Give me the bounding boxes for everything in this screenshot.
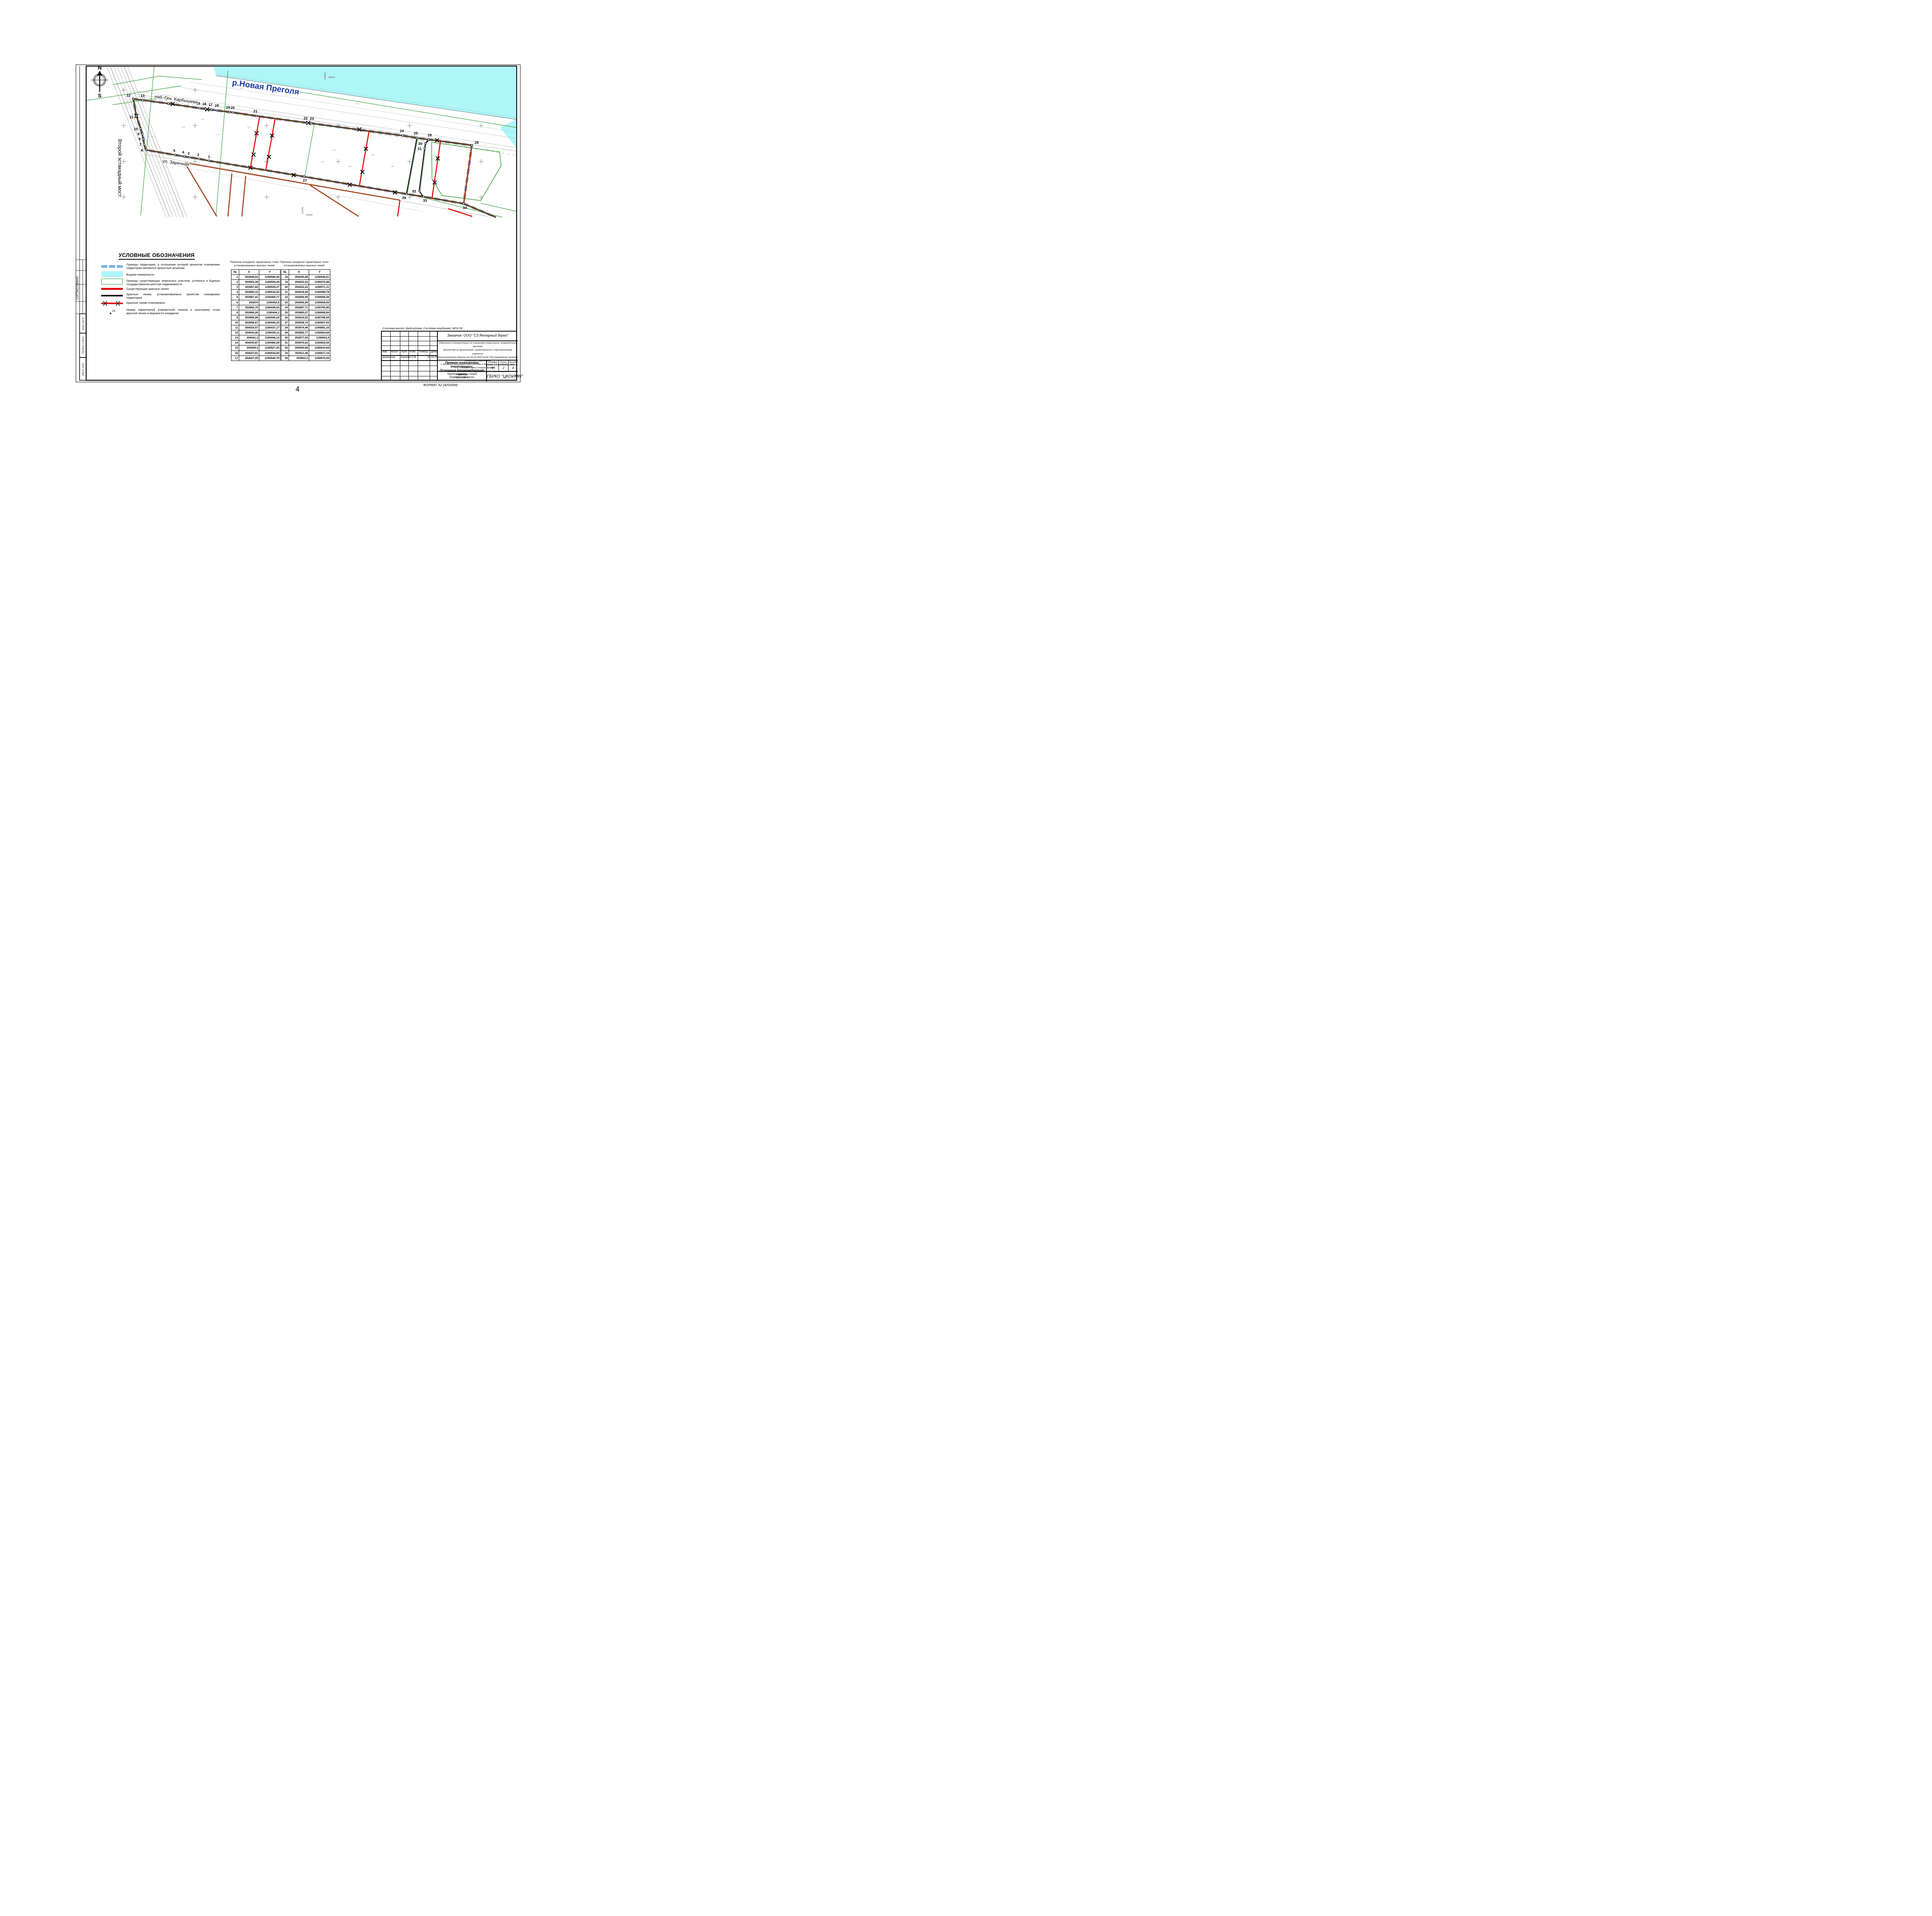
coord-cell: 12 [231, 330, 239, 335]
legend-swatch-red-planned [101, 295, 123, 296]
drawing-name: Чертеж красных линий М 1:1000 [438, 373, 486, 379]
coord-cell: 353902,2 [289, 356, 309, 361]
coord-cell: 354006,99 [289, 295, 309, 300]
point-marker [216, 110, 218, 112]
col-ndoc: N°док [409, 351, 415, 353]
point-marker [142, 99, 144, 101]
coord-cell: 353974,48 [289, 325, 309, 330]
coord-cell: 353914,52 [289, 315, 309, 320]
coord-cell: 353982,77 [289, 330, 309, 335]
coord-cell: 354041,3 [239, 335, 259, 340]
sheets-label: Листов [509, 361, 518, 364]
table-row: 22354006,991190668,26 [281, 295, 330, 300]
compass-n: N [98, 65, 102, 71]
compass-s: S [98, 92, 101, 99]
coord-cell: 24 [281, 305, 289, 310]
coord-cell: 353970 [239, 300, 259, 305]
stamp-podpis: Подпись и дата [82, 336, 85, 354]
legend-label: Существующие красные линии [126, 287, 220, 291]
legend-swatch-water [101, 271, 123, 277]
coord-cell: 353920,94 [289, 345, 309, 351]
legend-label: Номер характерной (поворотной, начала и … [126, 308, 220, 315]
coord-cell: 354018,09 [289, 290, 309, 295]
table-row: 3353957,841190529,27 [231, 285, 281, 290]
coord-cell: 25 [281, 310, 289, 315]
coord-cell: 1190823,54 [309, 340, 330, 345]
grid-y-bottom: 1190600 [302, 207, 304, 214]
point-marker [199, 107, 201, 109]
spot-elevation: 1.44 [201, 118, 204, 120]
point-number-label: 7 [139, 143, 141, 147]
coord-cell: 354024,57 [239, 325, 259, 330]
grid-y-top: 1190850 [324, 72, 327, 80]
point-number-label: 31 [417, 147, 422, 151]
table-row: 24353987,711190790,86 [281, 305, 330, 310]
stage-value: ПП [487, 366, 498, 370]
point-marker [143, 138, 145, 140]
point-number-label: 27 [303, 179, 307, 183]
coord-cell: 1190540,79 [259, 356, 281, 361]
table-row: 16354027,811190534,84 [231, 351, 281, 356]
coord-cell: 353938,74 [289, 320, 309, 325]
point-marker [463, 203, 465, 205]
coord-cell: 17 [231, 356, 239, 361]
coord-cell: 13 [231, 335, 239, 340]
spot-elevation: 1.63 [371, 154, 374, 156]
legend-label: Границы существующих земельных участков,… [126, 279, 220, 286]
spot-elevation: 1.52 [270, 138, 274, 140]
table-row: 8353988,261190444,1 [231, 310, 281, 315]
point-marker [428, 139, 430, 141]
table-row: 28353974,481190881,16 [281, 325, 330, 330]
coord-cell: 354022,24 [289, 280, 309, 285]
legend-swatch-red-existing [101, 288, 123, 290]
point-number-label: 28 [474, 141, 479, 145]
coord-cell: 354025,89 [289, 275, 309, 280]
bridge-label: Второй эстакадный мост [117, 139, 123, 197]
left-stamp-column [76, 66, 86, 380]
col-header: Y [309, 270, 330, 275]
coord-cell: 1190571,11 [309, 285, 330, 290]
point-marker [310, 123, 312, 124]
table-row: 32353920,941190815,69 [281, 345, 330, 351]
point-marker [145, 149, 147, 151]
point-number-label: 16 [202, 102, 207, 106]
spot-elevation: 1.25 [247, 126, 251, 128]
coord-cell: 353988,26 [239, 310, 259, 315]
coord-cell: 1190534,84 [259, 351, 281, 356]
col-list: Лист [401, 351, 407, 353]
point-number-label: 5 [173, 149, 175, 153]
point-number-label: 9 [138, 132, 139, 136]
coord-cell: 354022,22 [289, 285, 309, 290]
point-number-label: 17 [209, 103, 213, 107]
coord-cell: 353982,75 [239, 305, 259, 310]
point-marker [174, 154, 176, 156]
coord-cell: 30 [281, 335, 289, 340]
coord-cell: 1190798,59 [309, 315, 330, 320]
coord-cell: 354043,06 [239, 330, 259, 335]
coord-cell: 33 [281, 351, 289, 356]
point-number-label: 1 [208, 155, 210, 159]
point-number-label: 32 [412, 189, 416, 194]
point-number-label: 33 [423, 199, 427, 203]
point-number-label: 12 [126, 94, 131, 98]
legend-swatch-boundary [101, 265, 123, 268]
coord-cell: 1190598,78 [309, 290, 330, 295]
drawing-sheet: СОГЛАСОВАНО Взам. инв.N° Подпись и дата … [0, 0, 597, 422]
signer-name: Корягин С.В. [401, 356, 417, 359]
point-number-label: 25 [414, 131, 418, 136]
legend-label: Водная поверхность [126, 273, 220, 276]
grid-x-top: 354000 [328, 77, 335, 79]
territory-boundary [133, 99, 496, 217]
col-kol: Кол.уч. [391, 351, 399, 353]
svg-text:23: 23 [112, 309, 115, 313]
table-row: 27353938,741190657,63 [281, 320, 330, 325]
spot-elevation: 1.47 [332, 149, 336, 151]
point-labels: 1234567891011121314151617181920212223242… [126, 94, 478, 210]
table-row: 1353949,041190588,38 [231, 275, 281, 280]
point-number-label: 8 [139, 137, 141, 141]
table-row: 5353967,411190469,77 [231, 295, 281, 300]
stamp-approved: СОГЛАСОВАНО [76, 276, 79, 299]
coord-cell: 1190815,69 [309, 345, 330, 351]
stamp-vzam: Взам. инв.N° [82, 316, 85, 330]
legend-label: Красные линии отменяемые [126, 301, 220, 305]
point-number-label: 23 [310, 117, 314, 121]
spot-elevation: 1.36 [182, 126, 185, 128]
coord-cell: 21 [281, 290, 289, 295]
col-sign: Подпись [419, 351, 428, 353]
coord-table-1: №XY1353949,041190588,382353953,381190559… [231, 269, 281, 361]
coord-cell: 1190440,24 [259, 315, 281, 320]
title-block: Изм. Кол.уч. Лист N°док Подпись Дата Дир… [381, 331, 517, 381]
spot-elevation: 1.22 [216, 134, 220, 136]
table-row: 34353902,21190870,05 [281, 356, 330, 361]
point-marker [168, 103, 170, 105]
coord-cell: 19 [281, 280, 289, 285]
coord-cell: 18 [281, 275, 289, 280]
coord-cell: 32 [281, 345, 289, 351]
point-number-label: 18 [215, 104, 219, 108]
coord-cell: 353967,41 [239, 295, 259, 300]
coord-cell: 11 [231, 325, 239, 330]
signature-date: 29.03.25 [427, 356, 437, 359]
water-surface [213, 66, 516, 148]
coord-cell: 8 [231, 310, 239, 315]
point-number-label: 4 [182, 150, 184, 155]
coord-cell: 1190440,23 [259, 320, 281, 325]
coord-cell: 1190527,25 [259, 345, 281, 351]
coord-cell: 1190529,27 [259, 285, 281, 290]
coord-cell: 1190668,94 [309, 300, 330, 305]
point-number-label: 20 [231, 106, 235, 110]
sheets-value: 8 [509, 366, 518, 370]
point-marker [406, 193, 408, 195]
point-number-label: 2 [197, 153, 199, 157]
coord-cell: 354027,81 [239, 351, 259, 356]
coord-cell: 1190452,5 [259, 300, 281, 305]
coord-cell: 1190518,22 [259, 290, 281, 295]
spot-elevation: 1.90 [390, 165, 394, 167]
coord-cell: 1190437,17 [259, 325, 281, 330]
table-row: 12354043,061190435,11 [231, 330, 281, 335]
point-marker [306, 122, 308, 124]
coord-cell: 6 [231, 300, 239, 305]
coord-table-2: №XY18354025,891190546,6119354022,2411905… [281, 269, 330, 361]
coord-cell: 7 [231, 305, 239, 310]
point-marker [303, 176, 305, 178]
table-row: 29353982,771190824,68 [281, 330, 330, 335]
coord-cell: 27 [281, 320, 289, 325]
coord-cell: 1190657,63 [309, 320, 330, 325]
customer: Заказчик: ООО "СЗ Янтарный берег" [438, 334, 518, 337]
table-row: 63539701190452,5 [231, 300, 281, 305]
col-header: № [231, 270, 239, 275]
table-row: 20354022,221190571,11 [281, 285, 330, 290]
point-marker [198, 158, 200, 160]
coord-cell: 1190870,05 [309, 356, 330, 361]
coord-cell: 23 [281, 300, 289, 305]
coord-cell: 14 [231, 340, 239, 345]
table-row: 23354006,891190668,94 [281, 300, 330, 305]
coord-cell: 2 [231, 280, 239, 285]
spot-elevations: 1.251.521.471.361.221.851.631.901.441.97… [182, 87, 394, 167]
point-marker [189, 157, 190, 158]
col-izm: Изм. [383, 351, 388, 353]
coord-cell: 354006,89 [289, 300, 309, 305]
sheet-label: Лист [499, 361, 508, 364]
point-marker [140, 128, 142, 130]
table-row: 30353977,541190823,9 [281, 335, 330, 340]
table-row: 15354028,41190527,25 [231, 345, 281, 351]
coord-cell: 1190469,77 [259, 295, 281, 300]
coord-cell: 1190435,11 [259, 330, 281, 335]
legend-title: УСЛОВНЫЕ ОБОЗНАЧЕНИЯ [119, 252, 195, 260]
coord-cell: 34 [281, 356, 289, 361]
point-marker [255, 115, 257, 117]
coord-cell: 1190570,98 [309, 280, 330, 285]
coord-cell: 353996,67 [239, 320, 259, 325]
coord-cell: 4 [231, 290, 239, 295]
table-row: 26353914,521190798,59 [281, 315, 330, 320]
coord-cell: 20 [281, 285, 289, 290]
point-number-label: 26 [402, 196, 406, 200]
coord-cell: 28 [281, 325, 289, 330]
point-number-label: 6 [141, 148, 143, 153]
coord-cell: 354035,87 [239, 340, 259, 345]
point-marker [425, 143, 427, 145]
coord-cell: 354028,4 [239, 345, 259, 351]
coord-cell: 15 [231, 345, 239, 351]
sheet-value: 2 [499, 366, 508, 370]
table-row: 4353960,121190518,22 [231, 290, 281, 295]
coord-cell: 22 [281, 295, 289, 300]
coord-cell: 353985,07 [289, 310, 309, 315]
legend-swatch-red-cancelled [101, 301, 123, 306]
coord-cell: 1190881,16 [309, 325, 330, 330]
table1-title: Перечень координат характерных точек уст… [226, 261, 282, 267]
point-marker [205, 108, 207, 110]
coord-cell: 354027,05 [239, 356, 259, 361]
existing-red-lines [185, 163, 472, 216]
coord-cell: 1190546,61 [309, 275, 330, 280]
coord-cell: 1190588,38 [259, 275, 281, 280]
coord-cell: 9 [231, 315, 239, 320]
coord-cell: 16 [231, 351, 239, 356]
coord-cell: 1190823,9 [309, 335, 330, 340]
col-date: Дата [431, 351, 437, 353]
coord-cell: 1190446,12 [259, 335, 281, 340]
col-header: Y [259, 270, 281, 275]
format-note: ФОРМАТ А2 (420х594) [406, 383, 475, 387]
coord-cell: 3 [231, 285, 239, 290]
point-number-label: 3 [187, 151, 189, 156]
point-marker [184, 156, 185, 158]
coord-cell: 1190808,84 [309, 310, 330, 315]
point-marker [402, 135, 404, 137]
point-number-label: 24 [400, 129, 404, 133]
point-marker [424, 148, 426, 150]
point-number-label: 21 [253, 109, 258, 114]
coord-cell: 353949,04 [239, 275, 259, 280]
point-marker [133, 98, 134, 100]
point-marker [471, 145, 473, 146]
table-row: 18354025,891190546,61 [281, 275, 330, 280]
point-number-label: 19 [226, 105, 230, 110]
point-marker [418, 190, 420, 192]
coord-cell: 1190668,26 [309, 295, 330, 300]
organization: ГБУКО "ЦКОИМН" [487, 374, 518, 379]
table-row: 9353996,661190440,24 [231, 315, 281, 320]
point-number-label: 34 [463, 206, 467, 210]
col-header: X [289, 270, 309, 275]
coord-cell: 353911,38 [289, 351, 309, 356]
point-marker [136, 115, 138, 117]
table-row: 17354027,051190540,79 [231, 356, 281, 361]
coord-cell: 31 [281, 340, 289, 345]
col-header: № [281, 270, 289, 275]
coord-cell: 29 [281, 330, 289, 335]
point-marker [229, 111, 231, 113]
grid-x-bottom: 353900 [306, 214, 313, 216]
table-row: 7353982,751190446,63 [231, 305, 281, 310]
coord-cell: 353953,38 [239, 280, 259, 285]
table-row: 11354024,571190437,17 [231, 325, 281, 330]
point-marker [423, 196, 425, 198]
coord-cell: 1190824,68 [309, 330, 330, 335]
point-marker [416, 137, 418, 139]
coord-cell: 1190790,86 [309, 305, 330, 310]
table-row: 33353911,381190817,15 [281, 351, 330, 356]
page-number: 4 [296, 385, 299, 393]
table-row: 2353953,381190559,49 [231, 280, 281, 285]
spot-elevation: 1.85 [348, 165, 351, 167]
legend-swatch-parcels [101, 279, 123, 284]
legend-label: Красные линии, устанавливаемые проектом … [126, 293, 220, 299]
table-row: 10353996,671190440,23 [231, 320, 281, 325]
legend-label: Границы территории, в отношении которой … [126, 263, 220, 270]
table-row: 13354041,31190446,12 [231, 335, 281, 340]
coord-cell: 10 [231, 320, 239, 325]
coord-cell: 1190817,15 [309, 351, 330, 356]
coord-cell: 5 [231, 295, 239, 300]
street-label: ул. Заречная [162, 159, 189, 167]
table-row: 31353975,021190823,54 [281, 340, 330, 345]
stage-label: Стадия [487, 361, 498, 364]
north-arrow: N S [91, 65, 108, 99]
table2-title: Перечень координат характерных точек уст… [276, 261, 332, 267]
stamp-inv: Инв.N° подл. [82, 362, 85, 376]
point-marker [211, 109, 213, 111]
legend-swatch-point-number: 23 [101, 308, 123, 315]
table-row: 14354035,871190480,29 [231, 340, 281, 345]
point-marker [208, 160, 210, 162]
signer-role: Директор [383, 356, 395, 359]
point-number-label: 10 [134, 127, 138, 131]
coord-cell: 353977,54 [289, 335, 309, 340]
point-marker [141, 133, 143, 135]
point-number-label: 30 [418, 142, 422, 146]
coord-cell: 1190559,49 [259, 280, 281, 285]
map-area: 1234567891011121314151617181920212223242… [87, 65, 516, 217]
coord-cell: 26 [281, 315, 289, 320]
point-number-label: 11 [129, 115, 134, 119]
point-number-label: 13 [141, 94, 145, 98]
coord-cell: 1190446,63 [259, 305, 281, 310]
point-marker [232, 112, 234, 114]
table-row: 21354018,091190598,78 [281, 290, 330, 295]
spot-elevation: 1.57 [355, 103, 359, 105]
point-marker [143, 144, 145, 146]
table-row: 25353985,071190808,84 [281, 310, 330, 315]
coord-cell: 353957,84 [239, 285, 259, 290]
col-header: X [239, 270, 259, 275]
coordinate-system-note: Система высот: Балтийская. Система коорд… [383, 327, 463, 330]
coord-cell: 1190480,29 [259, 340, 281, 345]
table-row: 19354022,241190570,98 [281, 280, 330, 285]
coord-cell: 353996,66 [239, 315, 259, 320]
point-number-label: 29 [428, 133, 432, 138]
coord-cell: 1190444,1 [259, 310, 281, 315]
coord-cell: 1 [231, 275, 239, 280]
coord-cell: 353960,12 [239, 290, 259, 295]
coord-cell: 353975,02 [289, 340, 309, 345]
spot-elevation: 1.97 [321, 161, 324, 163]
point-number-label: 22 [304, 116, 308, 121]
coord-cell: 353987,71 [289, 305, 309, 310]
